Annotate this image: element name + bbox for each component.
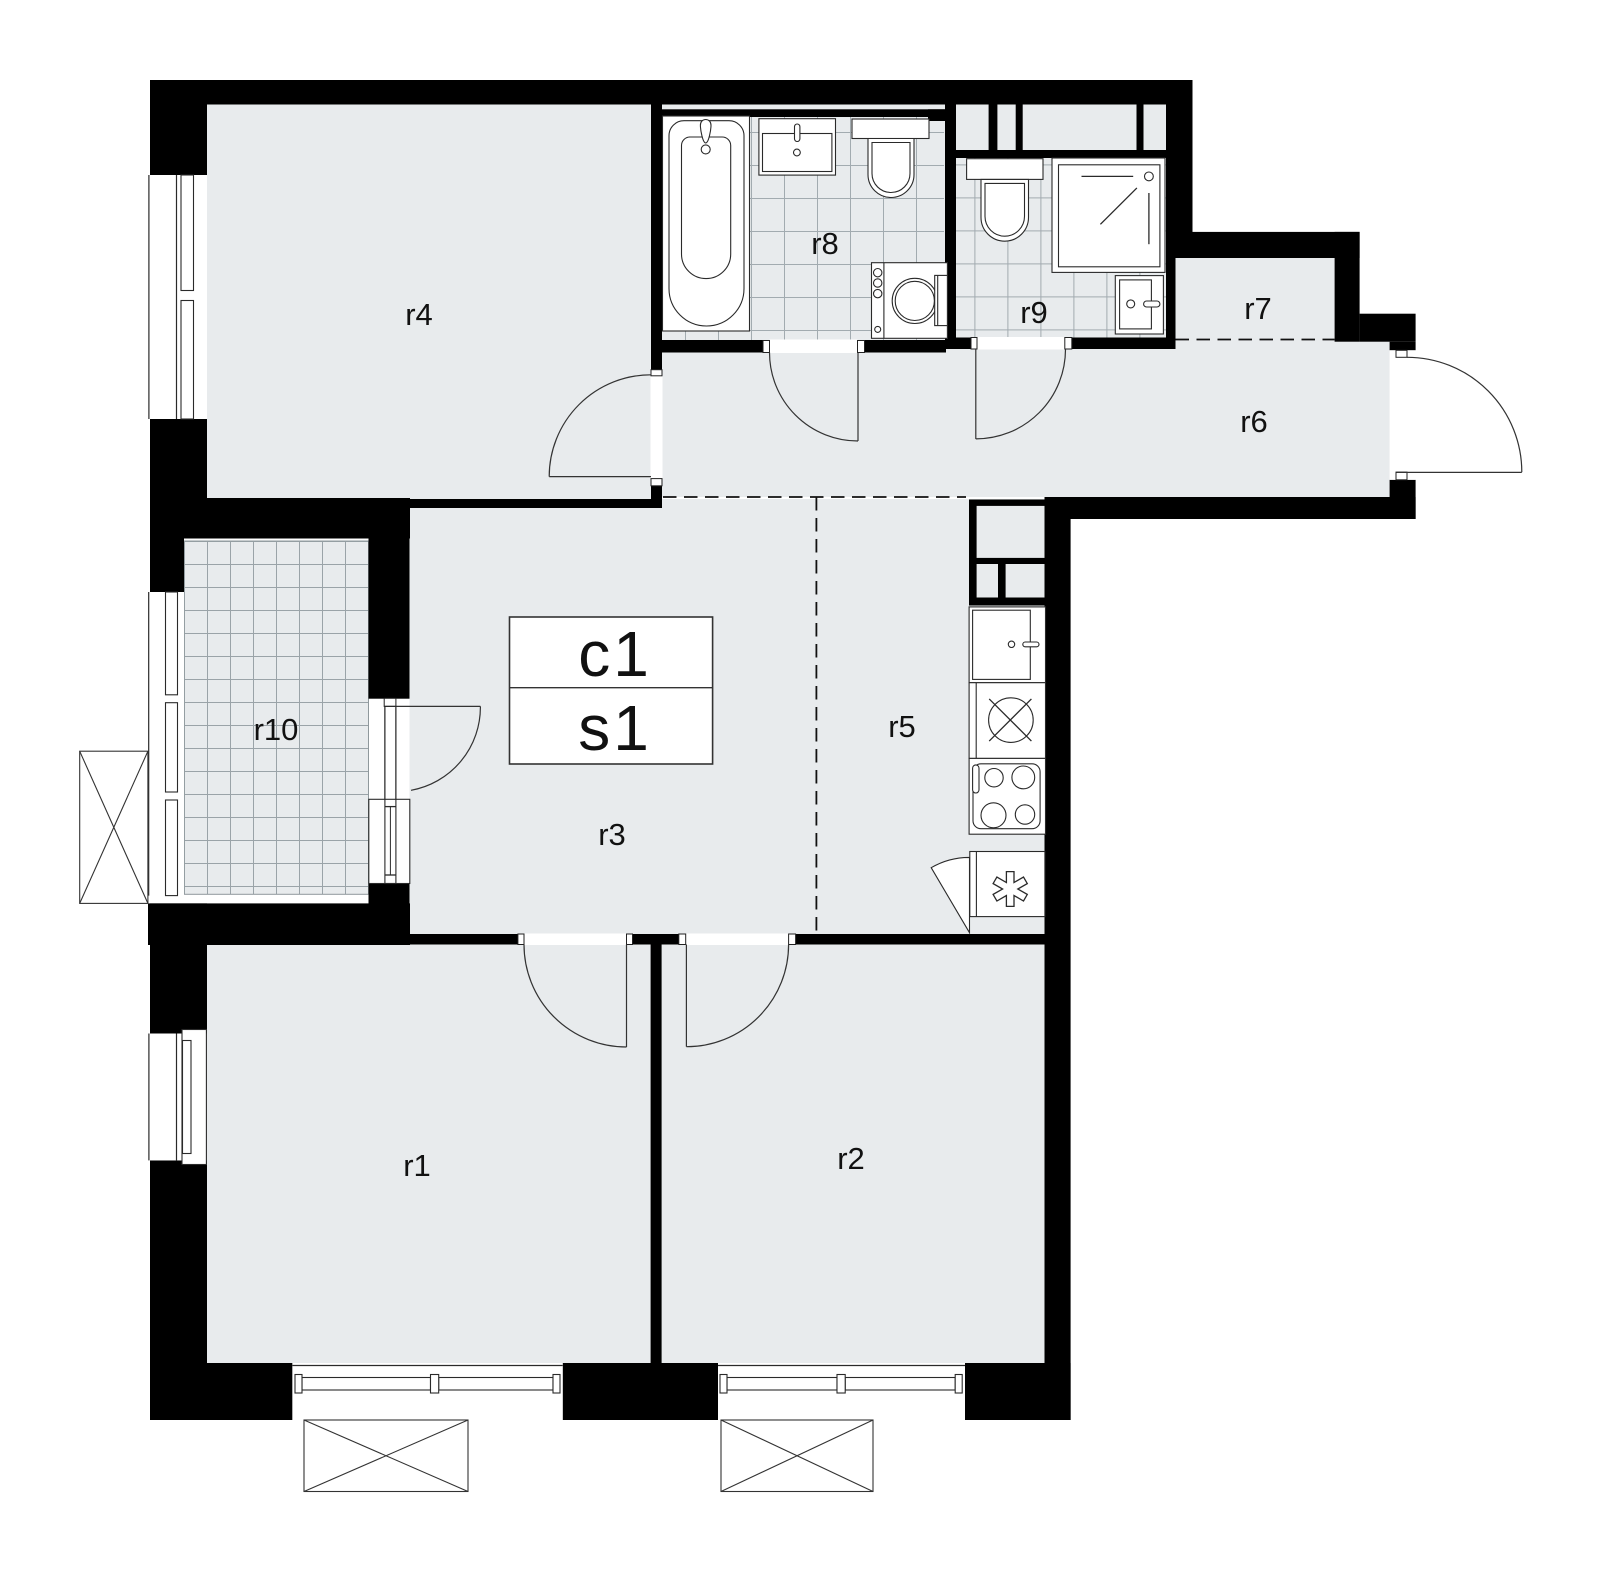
svg-text:s1: s1 (578, 692, 652, 764)
svg-text:r10: r10 (254, 712, 299, 747)
svg-text:r1: r1 (403, 1148, 431, 1183)
svg-text:r2: r2 (837, 1141, 865, 1176)
svg-text:r9: r9 (1020, 295, 1048, 330)
svg-text:r7: r7 (1244, 291, 1272, 326)
svg-text:r8: r8 (811, 226, 839, 261)
svg-text:r5: r5 (888, 709, 916, 744)
svg-text:r6: r6 (1240, 404, 1268, 439)
svg-text:r4: r4 (405, 297, 433, 332)
svg-text:r3: r3 (598, 817, 626, 852)
svg-text:c1: c1 (578, 618, 652, 690)
